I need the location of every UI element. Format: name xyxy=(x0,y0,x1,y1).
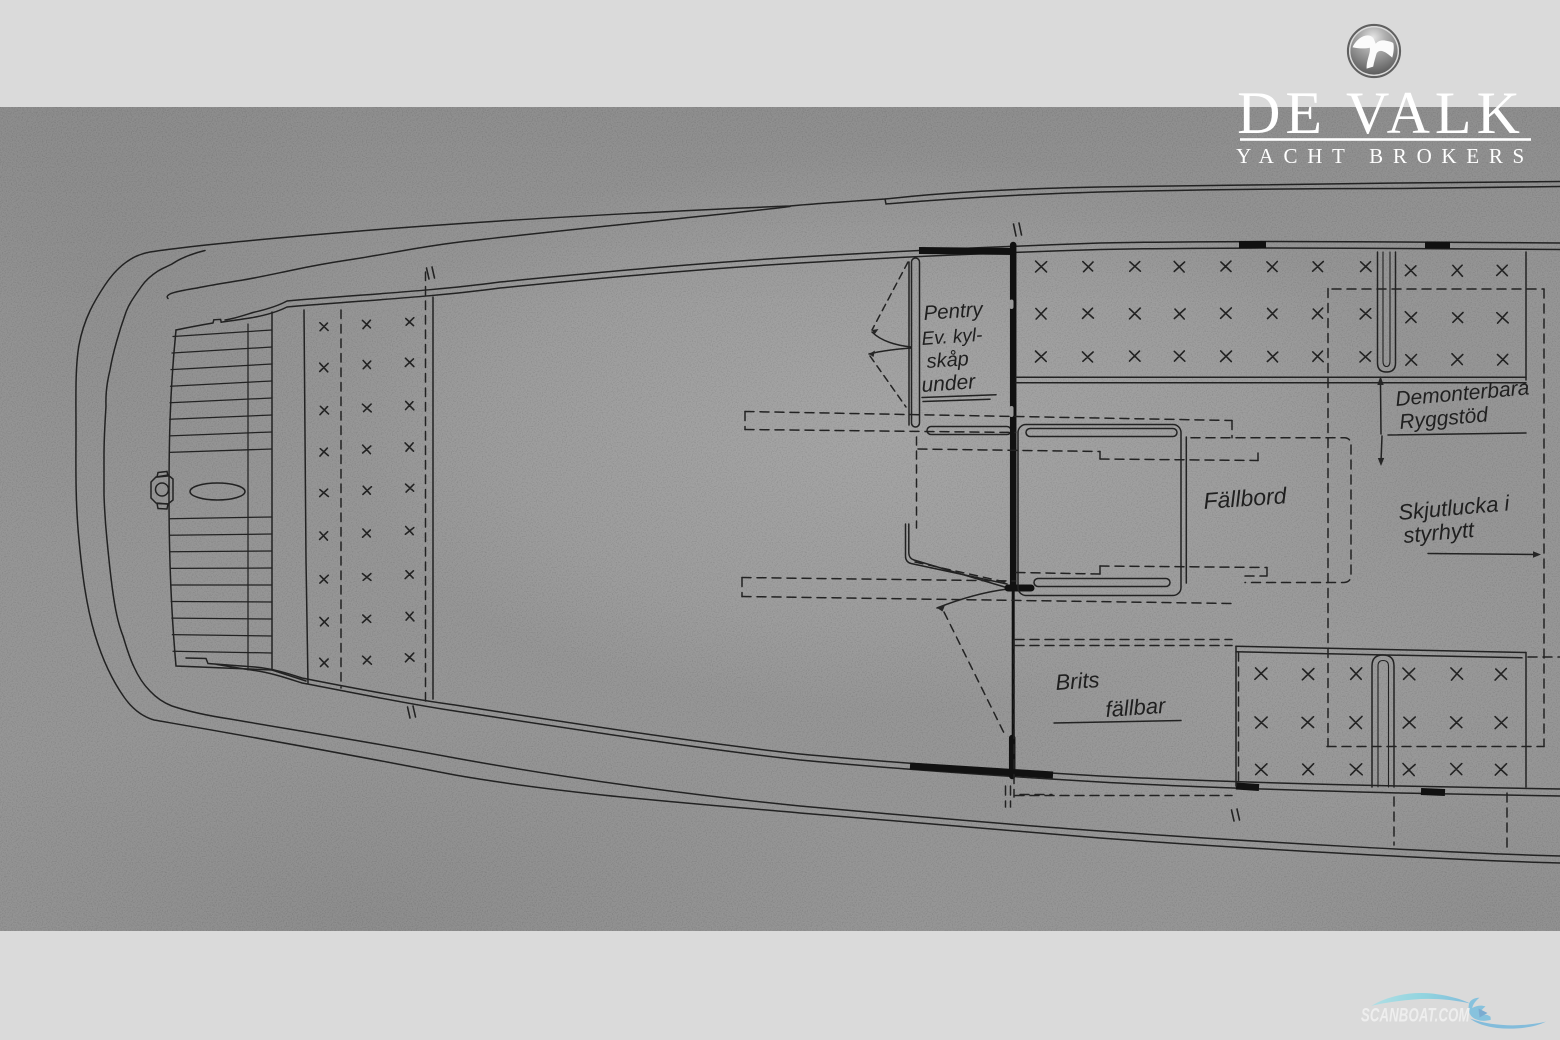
svg-text:Brits: Brits xyxy=(1055,667,1101,695)
svg-text:DE VALK: DE VALK xyxy=(1237,80,1525,146)
svg-text:YACHT BROKERS: YACHT BROKERS xyxy=(1236,144,1534,168)
svg-text:SCANBOAT.COM: SCANBOAT.COM xyxy=(1361,1004,1470,1026)
svg-text:fällbar: fällbar xyxy=(1105,693,1168,722)
svg-text:Ev. kyl-: Ev. kyl- xyxy=(921,325,983,350)
svg-text:skåp: skåp xyxy=(926,348,970,373)
svg-text:Pentry: Pentry xyxy=(923,298,985,325)
svg-text:under: under xyxy=(921,370,977,397)
